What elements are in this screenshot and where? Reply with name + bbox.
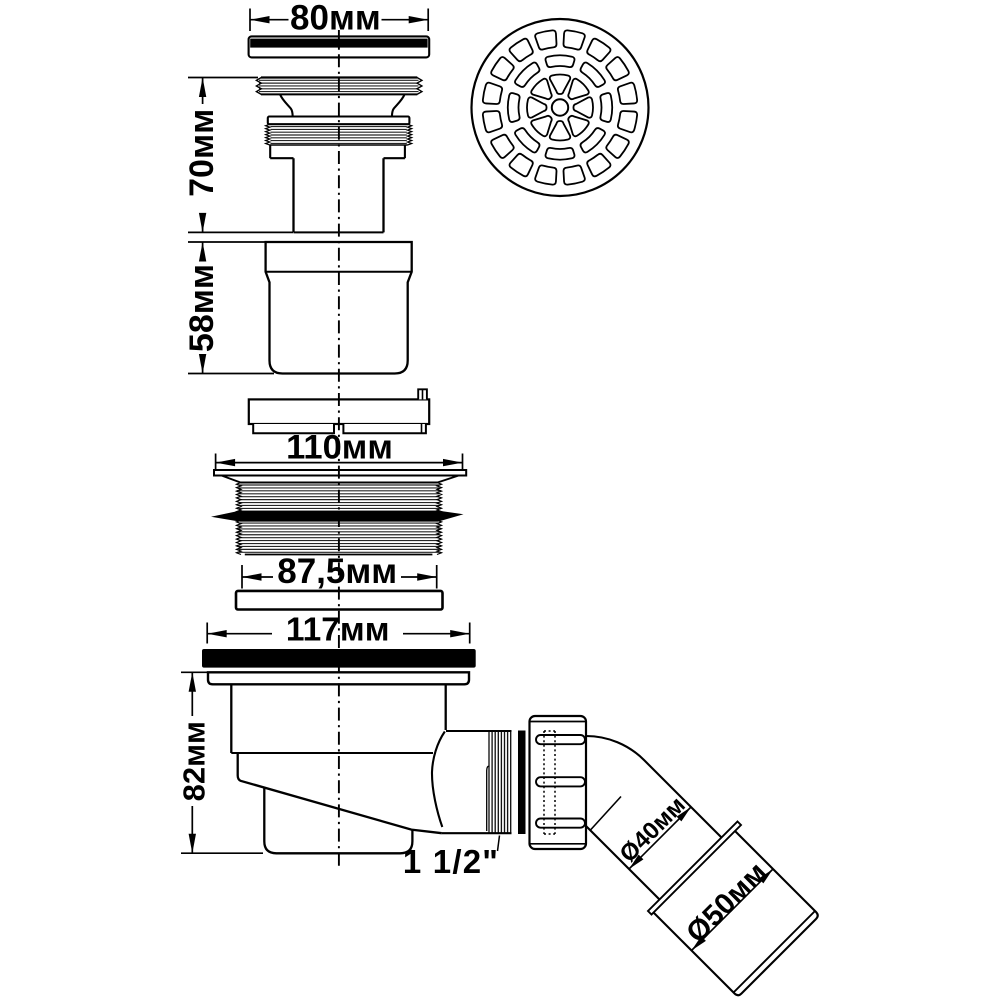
svg-text:117мм: 117мм — [286, 611, 390, 648]
svg-text:58мм: 58мм — [183, 264, 221, 352]
svg-text:1 1/2": 1 1/2" — [403, 843, 499, 880]
svg-text:70мм: 70мм — [183, 109, 221, 197]
svg-text:82мм: 82мм — [177, 721, 212, 801]
svg-text:87,5мм: 87,5мм — [277, 552, 397, 591]
svg-text:Ø40мм: Ø40мм — [615, 792, 691, 868]
svg-text:80мм: 80мм — [290, 0, 381, 37]
